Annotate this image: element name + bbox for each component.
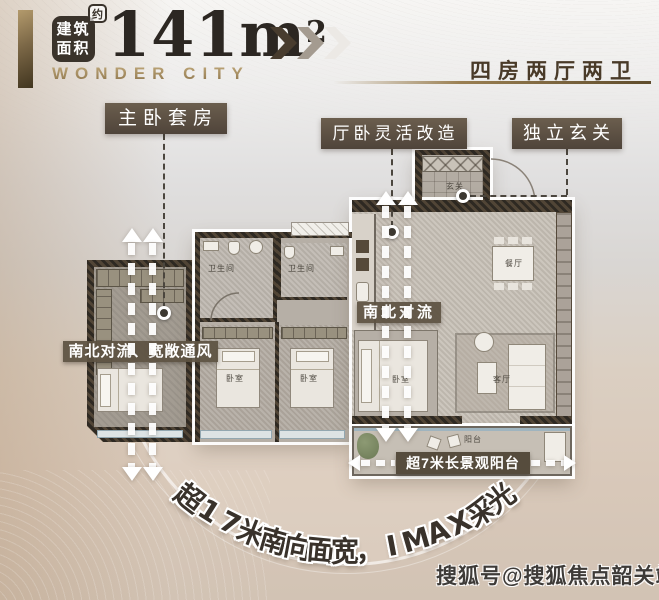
airflow-arrow-icon: [376, 428, 396, 442]
gold-divider: [333, 81, 651, 84]
room-label-dining: 餐厅: [505, 258, 523, 269]
width-arrow-line: [361, 460, 395, 466]
area-number: 141: [107, 0, 239, 71]
toilet-icon: [228, 241, 240, 255]
appliance-icon: [356, 240, 369, 253]
airflow-arrow-icon: [398, 428, 418, 442]
master-bay-window: [97, 430, 183, 438]
door-arc-icon: [210, 292, 240, 322]
room-label-balcony: 阳台: [464, 434, 482, 445]
airflow-line: [404, 206, 411, 428]
wall: [415, 150, 490, 155]
airflow-line: [382, 206, 389, 428]
poster: 建筑 面积 约 141m2 WONDER CITY 四房两厅两卫 主卧套房 厅卧…: [0, 0, 659, 600]
ac-platform: [291, 222, 349, 236]
balcony-cabinet-icon: [544, 432, 566, 462]
cabinet-icon: [140, 289, 184, 303]
dining-chairs-icon: [494, 237, 534, 244]
room-label-bathroom2: 卫生间: [288, 263, 315, 274]
connector-entry-h: [470, 195, 567, 197]
badge-line1: 建筑: [56, 21, 90, 38]
sofa-icon: [508, 344, 546, 410]
airflow-arrow-icon: [143, 228, 163, 242]
connector-dot-entry: [456, 189, 470, 203]
logo-bar: [18, 10, 33, 88]
wardrobe-icon: [96, 269, 184, 287]
wardrobe-icon: [96, 289, 112, 375]
connector-flexible: [391, 149, 393, 227]
airflow-line: [128, 243, 135, 467]
connector-dot-master: [157, 306, 171, 320]
label-ventilation: 南北对流: [357, 302, 441, 323]
airflow-arrow-icon: [122, 467, 142, 481]
airflow-arrow-icon: [398, 191, 418, 205]
washer-icon: [249, 240, 263, 254]
entry-cabinet-icon: [422, 156, 483, 172]
bay-window: [279, 430, 345, 439]
wall: [279, 297, 347, 300]
callout-master-suite: 主卧套房: [105, 103, 227, 134]
bay-window: [200, 430, 272, 439]
wall: [277, 238, 281, 300]
room-label-bathroom1: 卫生间: [208, 263, 235, 274]
wall: [195, 232, 200, 442]
airflow-arrow-icon: [143, 467, 163, 481]
armchair-icon: [474, 332, 494, 352]
watermark: 搜狐号@搜狐焦点韶关站: [436, 560, 659, 590]
sink-icon: [203, 241, 219, 251]
area-unit: m: [239, 0, 306, 71]
room-label-bedroom-a: 卧室: [226, 373, 244, 384]
width-arrow-icon: [348, 455, 360, 471]
connector-entry-v: [566, 149, 568, 195]
wall: [556, 212, 572, 424]
callout-entry-hall: 独立玄关: [512, 118, 622, 149]
badge-line2: 面积: [56, 40, 90, 57]
wall: [275, 322, 279, 442]
room-label-living: 客厅: [493, 374, 511, 385]
toilet-icon: [284, 246, 295, 259]
tagline-char: ，: [353, 528, 385, 570]
airflow-line: [149, 243, 156, 467]
brand-name: WONDER CITY: [52, 64, 250, 84]
wall: [483, 150, 490, 206]
label-ventilation-wide: 南北对流、宽敞通风: [63, 341, 218, 362]
wardrobe-icon: [281, 327, 347, 339]
airflow-arrow-icon: [376, 191, 396, 205]
width-arrow-line: [531, 460, 565, 466]
approx-bubble: 约: [88, 4, 107, 23]
sink-icon: [330, 246, 344, 256]
room-label-bedroom-b: 卧室: [300, 373, 318, 384]
area-value: 141m2: [107, 2, 327, 66]
sink-icon: [356, 282, 369, 302]
width-arrow-icon: [564, 455, 576, 471]
connector-master: [163, 134, 165, 308]
dining-chairs-icon: [494, 283, 534, 290]
appliance-icon: [356, 258, 369, 271]
airflow-arrow-icon: [122, 228, 142, 242]
door-arc-icon: [490, 158, 536, 204]
callout-flexible-room: 厅卧灵活改造: [321, 118, 467, 149]
wall: [520, 416, 572, 424]
wardrobe-icon: [202, 327, 273, 339]
label-balcony-feature: 超7米长景观阳台: [396, 452, 530, 474]
